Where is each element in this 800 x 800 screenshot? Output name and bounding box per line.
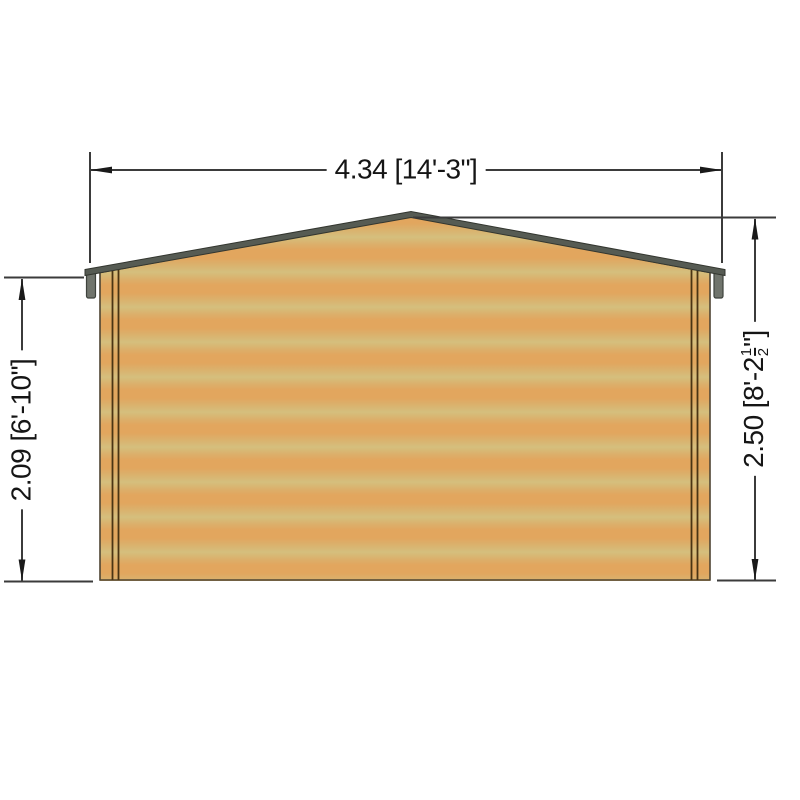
ridge-fraction: 1 2 bbox=[739, 348, 771, 356]
ridge-metric-text: 2.50 bbox=[739, 415, 770, 468]
width-dimension-label: 4.34 [14'-3"] bbox=[327, 154, 486, 187]
ridge-arrow-bottom-icon bbox=[752, 559, 759, 581]
ridge-fraction-numerator: 1 bbox=[739, 348, 754, 356]
ridge-fraction-denominator: 2 bbox=[754, 348, 771, 356]
ridge-imperial-open-text: [8'-2 bbox=[739, 357, 770, 408]
eaves-arrow-bottom-icon bbox=[19, 560, 26, 582]
eaves-height-dimension-label: 2.09 [6'-10"] bbox=[6, 351, 39, 510]
wall-outline bbox=[100, 216, 710, 580]
roof-edge bbox=[85, 212, 725, 276]
dimension-drawing: 4.34 [14'-3"] 2.09 [6'-10"] 2.50 [8'-2 1… bbox=[0, 0, 800, 800]
eaves-arrow-top-icon bbox=[19, 279, 26, 301]
ridge-height-dimension-label: 2.50 [8'-2 1 2 "] bbox=[737, 322, 771, 476]
ridge-imperial-close-text: "] bbox=[739, 330, 770, 347]
drawing-overlay bbox=[0, 0, 800, 800]
ridge-arrow-top-icon bbox=[752, 218, 759, 240]
width-arrow-left-icon bbox=[90, 167, 112, 174]
width-arrow-right-icon bbox=[700, 167, 722, 174]
